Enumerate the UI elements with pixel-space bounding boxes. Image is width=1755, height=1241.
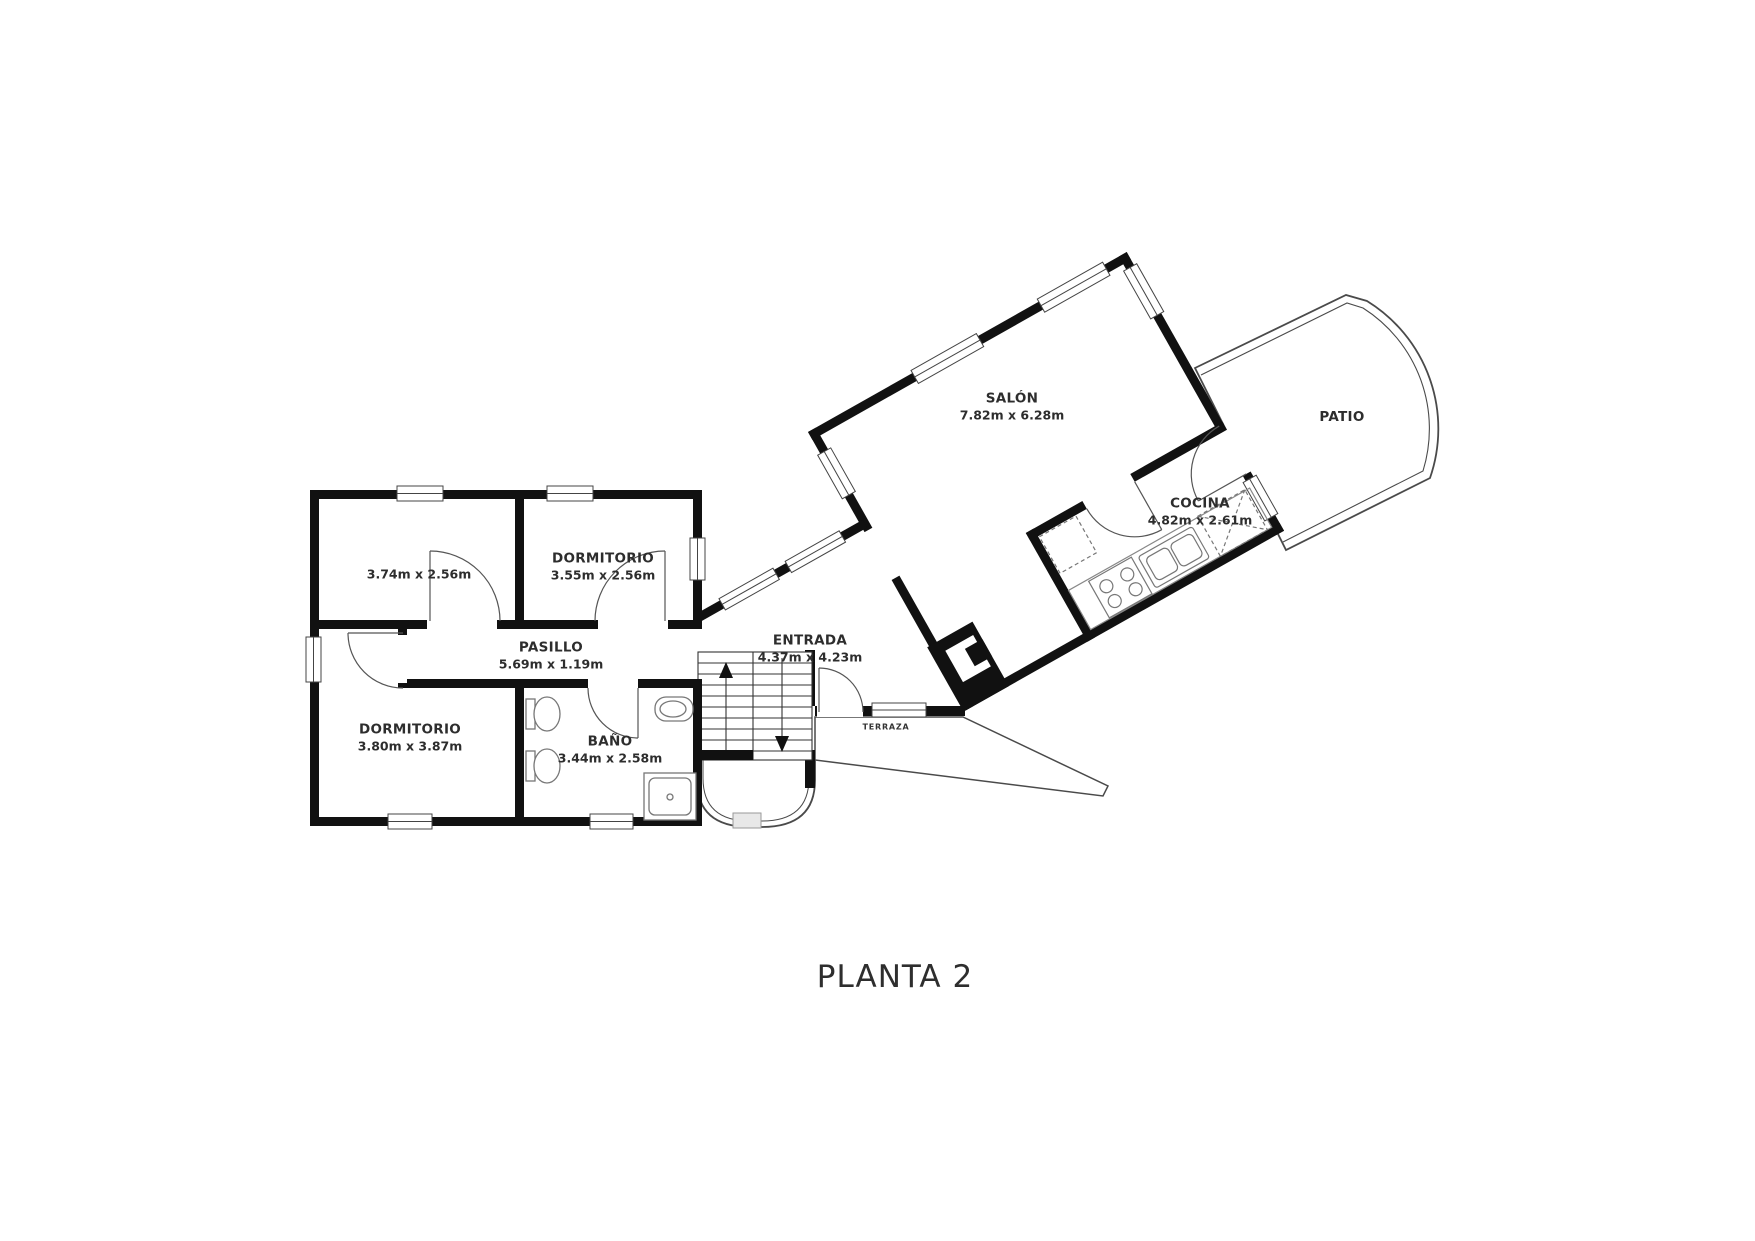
terraza-outline — [815, 717, 1108, 796]
floorplan-page: SALÓN 7.82m x 6.28m COCINA 4.82m x 2.61m… — [0, 0, 1755, 1241]
shower-tray — [644, 773, 696, 820]
left-wing-doors — [348, 551, 665, 738]
wing-floor — [808, 252, 1284, 711]
left-wing-walls — [310, 490, 702, 826]
bidet — [526, 749, 560, 783]
floorplan-drawing — [0, 0, 1755, 1241]
toilet — [526, 697, 560, 731]
entrance-porch — [697, 760, 815, 828]
page-title: PLANTA 2 — [817, 959, 973, 995]
bathroom-fixtures — [526, 697, 696, 820]
staircase — [697, 652, 812, 760]
washbasin — [655, 697, 693, 721]
salon-cocina-wing — [804, 248, 1287, 712]
connection-wall — [695, 518, 869, 624]
porch-step — [733, 813, 761, 828]
